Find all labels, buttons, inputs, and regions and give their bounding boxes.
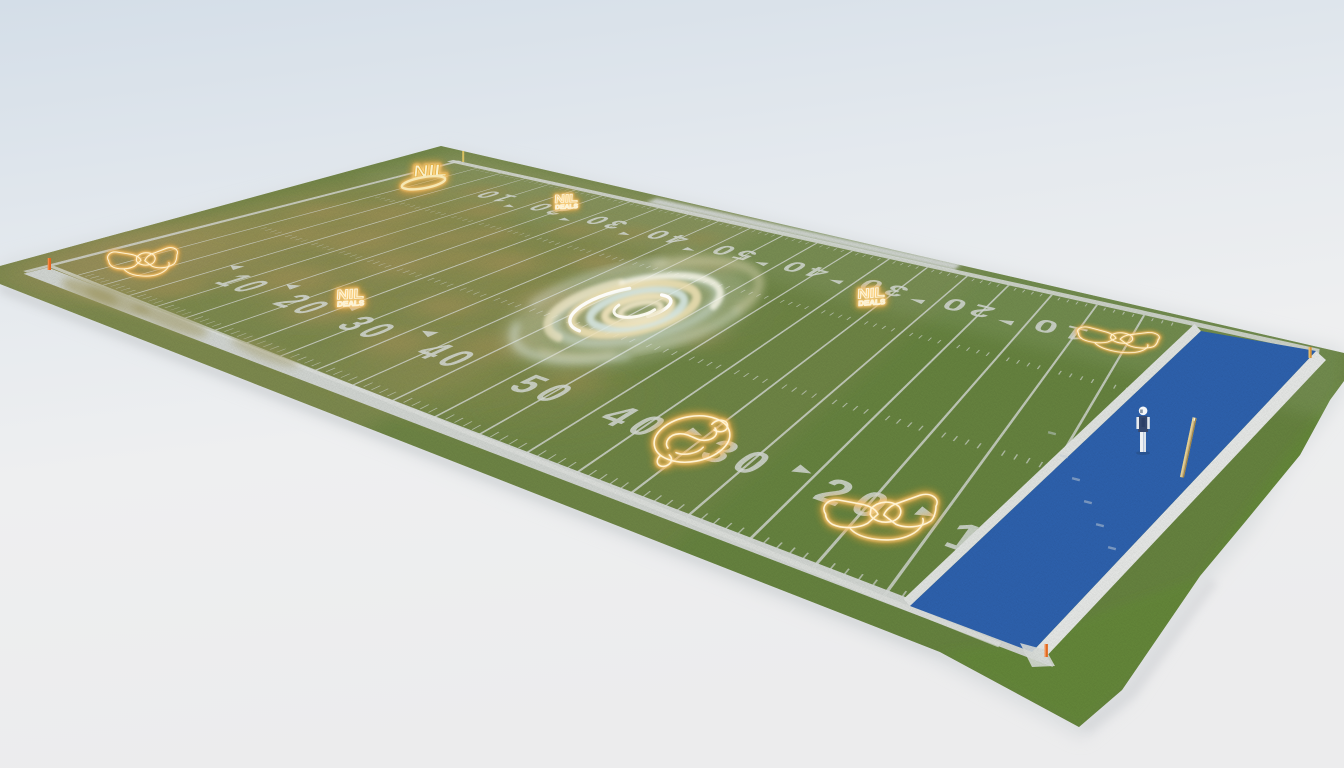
svg-text:DEALS: DEALS	[555, 203, 579, 211]
svg-text:DEALS: DEALS	[337, 299, 364, 309]
